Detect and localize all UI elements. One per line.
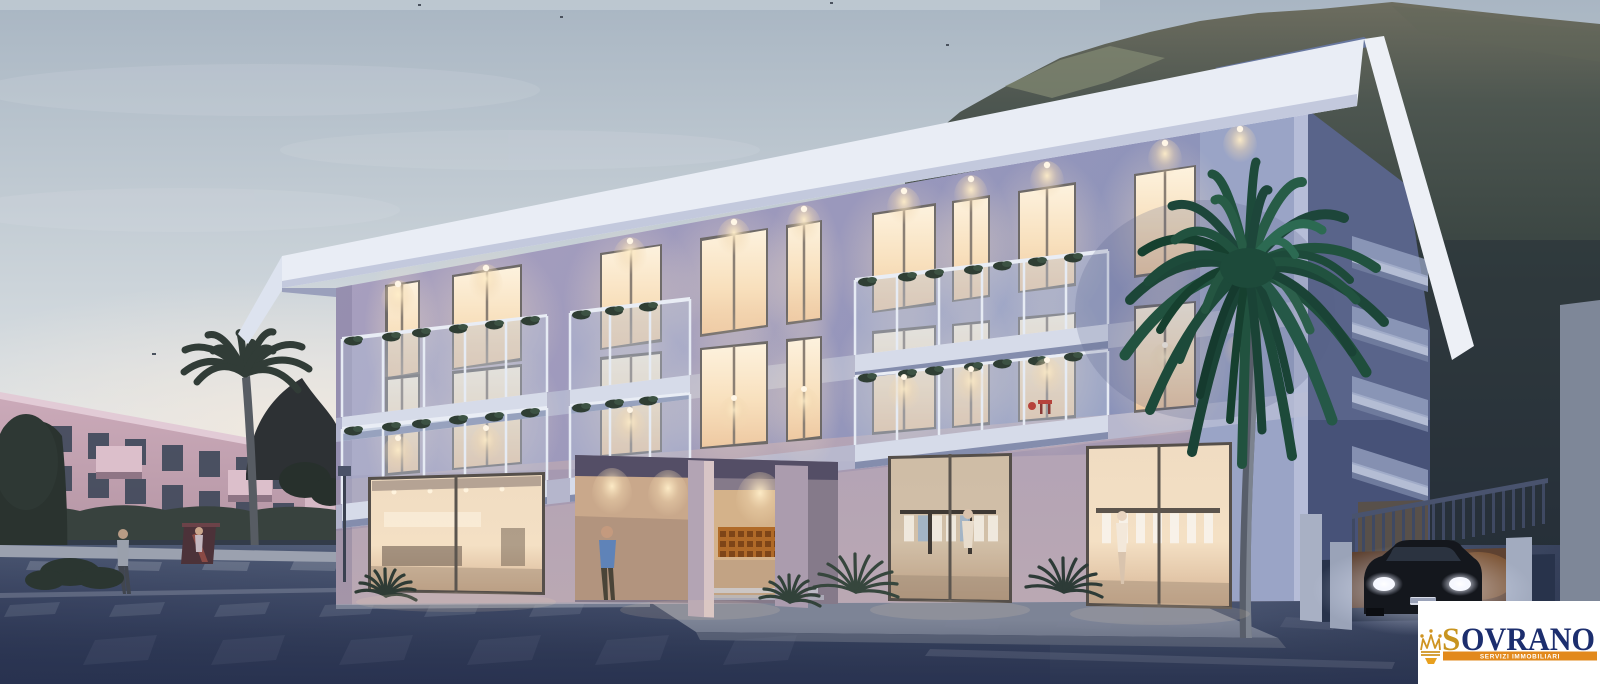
svg-text:SERVIZI IMMOBILIARI: SERVIZI IMMOBILIARI bbox=[1480, 654, 1560, 661]
